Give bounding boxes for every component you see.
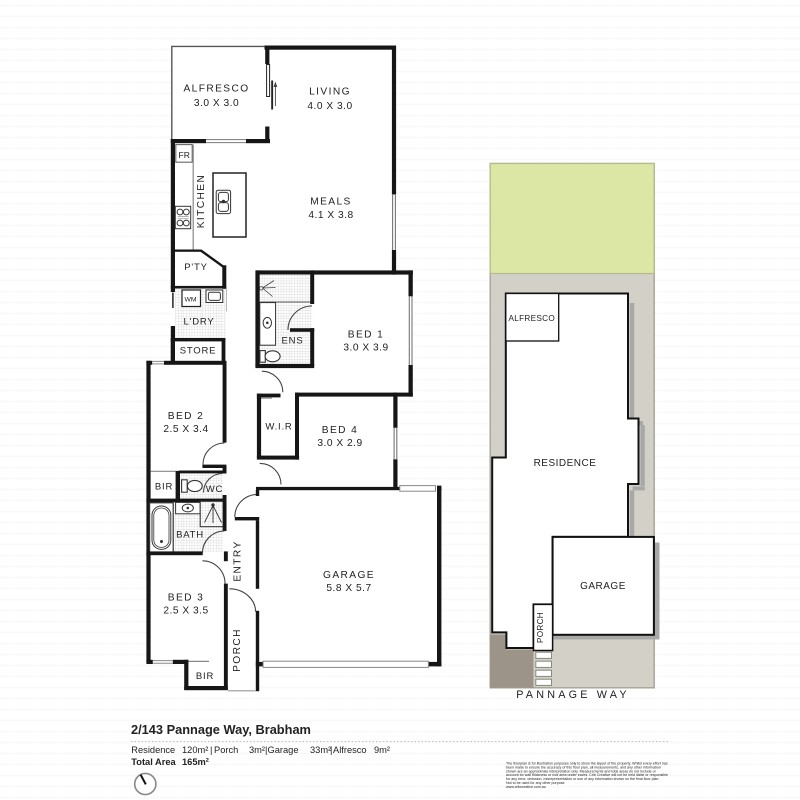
svg-text:LIVING: LIVING [309, 87, 351, 98]
svg-text:Porch: Porch [214, 745, 238, 755]
svg-text:2/143 Pannage Way, Brabham: 2/143 Pannage Way, Brabham [131, 722, 311, 737]
svg-text:L'DRY: L'DRY [184, 317, 215, 328]
svg-text:4.1 X 3.8: 4.1 X 3.8 [308, 210, 353, 221]
svg-text:9m²: 9m² [374, 745, 390, 755]
svg-text:Total Area: Total Area [131, 757, 176, 767]
svg-text:Garage: Garage [268, 745, 299, 755]
svg-text:BIR: BIR [196, 671, 214, 682]
svg-text:3m²: 3m² [249, 745, 265, 755]
svg-text:5.8 X 5.7: 5.8 X 5.7 [326, 583, 371, 594]
svg-text:3.0 X 2.9: 3.0 X 2.9 [317, 438, 362, 449]
svg-text:3.0 X 3.9: 3.0 X 3.9 [343, 343, 388, 354]
svg-text:120m²: 120m² [182, 745, 208, 755]
svg-text:ALFRESCO: ALFRESCO [183, 84, 249, 95]
svg-text:|: | [210, 745, 212, 755]
svg-text:3.0 X 3.0: 3.0 X 3.0 [194, 98, 239, 109]
svg-text:BED 1: BED 1 [348, 330, 384, 341]
svg-text:33m²: 33m² [310, 745, 331, 755]
svg-text:STORE: STORE [180, 346, 217, 357]
svg-text:2.5 X 3.5: 2.5 X 3.5 [163, 606, 208, 617]
svg-text:Alfresco: Alfresco [333, 745, 367, 755]
svg-text:2.5 X 3.4: 2.5 X 3.4 [163, 424, 208, 435]
svg-text:BED 4: BED 4 [322, 425, 358, 436]
svg-text:GARAGE: GARAGE [323, 570, 375, 581]
svg-text:GARAGE: GARAGE [580, 581, 626, 592]
svg-text:PANNAGE WAY: PANNAGE WAY [516, 689, 630, 701]
svg-text:MEALS: MEALS [310, 197, 352, 208]
svg-text:KITCHEN: KITCHEN [196, 174, 207, 229]
svg-text:ALFRESCO: ALFRESCO [509, 314, 556, 323]
svg-text:BED 3: BED 3 [168, 593, 204, 604]
svg-text:BATH: BATH [176, 530, 204, 541]
svg-text:BED 2: BED 2 [168, 411, 204, 422]
svg-text:RESIDENCE: RESIDENCE [534, 458, 597, 469]
svg-text:Residence: Residence [131, 745, 175, 755]
svg-text:P'TY: P'TY [184, 262, 208, 273]
svg-text:BIR: BIR [155, 482, 173, 493]
svg-text:WM: WM [185, 297, 197, 304]
svg-text:www.cribcreative.com.au: www.cribcreative.com.au [506, 785, 546, 789]
svg-text:FR: FR [179, 150, 190, 160]
svg-text:165m²: 165m² [182, 757, 209, 767]
svg-text:PORCH: PORCH [536, 612, 545, 643]
svg-text:WC: WC [206, 484, 223, 495]
svg-text:ENTRY: ENTRY [233, 540, 244, 581]
svg-text:ENS: ENS [282, 336, 304, 347]
svg-text:PORCH: PORCH [232, 628, 243, 672]
svg-text:W.I.R: W.I.R [265, 422, 292, 433]
svg-text:4.0 X 3.0: 4.0 X 3.0 [307, 101, 352, 112]
